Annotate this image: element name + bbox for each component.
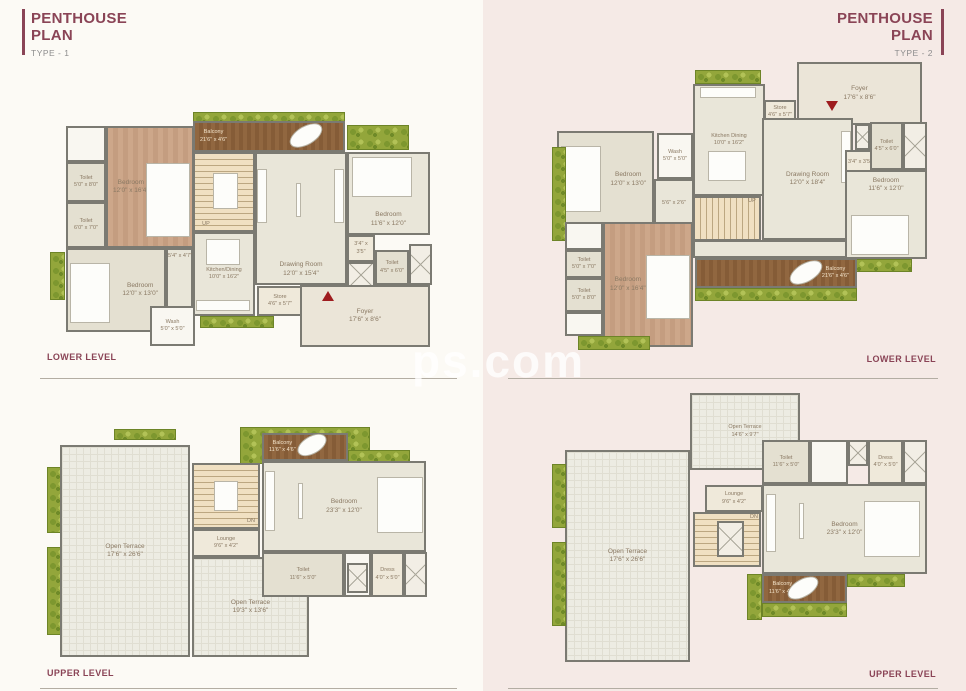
- t1u-tv-unit: [298, 483, 303, 519]
- room-label: Toilet 11'6" x 5'0": [290, 567, 317, 581]
- room-label: Open Terrace 14'6" x 9'7": [728, 424, 761, 438]
- t1l-shaft-b: [409, 244, 432, 285]
- t2u-tv-unit: [799, 503, 804, 539]
- t1l-planter-bottom: [200, 316, 274, 328]
- t2u-open-terrace-main: Open Terrace 17'6" x 26'6": [565, 450, 690, 662]
- t2-bottom-line: [508, 688, 938, 689]
- page-title-type1: PENTHOUSE PLAN: [31, 10, 127, 45]
- room-label: Dress 4'0" x 5'0": [375, 567, 399, 581]
- room-label: Toilet 6'0" x 7'0": [74, 218, 98, 232]
- t2u-planter-left1: [552, 464, 566, 528]
- t2u-toilet: Toilet 11'6" x 5'0": [762, 440, 810, 484]
- t2u-planter-balcony-bottom: [762, 603, 847, 617]
- t2l-up-label: UP: [744, 198, 760, 205]
- t2l-kitchen-counter: [700, 87, 756, 98]
- page-canvas: PENTHOUSE PLAN TYPE - 1 PENTHOUSE PLAN T…: [0, 0, 966, 691]
- room-label: Balcony 21'6" x 4'6": [200, 129, 227, 143]
- t2-lower-level-label: LOWER LEVEL: [867, 354, 936, 364]
- t1u-sofa: [265, 471, 275, 531]
- t1u-bed: [377, 477, 423, 533]
- t1l-toilet-a: Toilet 5'0" x 8'0": [66, 162, 106, 202]
- t2l-foyer: Foyer 17'6" x 8'6": [797, 62, 922, 125]
- t1l-wash: Wash 5'0" x 5'0": [150, 306, 195, 346]
- room-label: Balcony 11'6" x 4'6": [269, 440, 296, 454]
- room-label: 3'4" x 3'5": [848, 159, 872, 166]
- t2l-shaft-a: [855, 124, 870, 150]
- room-label: Kitchen/Dining 10'0" x 16'2": [206, 267, 241, 281]
- t2l-toilet-right: Toilet 4'5" x 6'0": [870, 122, 903, 170]
- room-label: Toilet 4'5" x 6'0": [380, 260, 404, 274]
- t1l-entry-lobby: [66, 126, 106, 162]
- type2-subtitle: TYPE - 2: [837, 48, 933, 58]
- room-label: Dress 4'0" x 5'0": [873, 455, 897, 469]
- t1l-dining-table: [206, 239, 240, 265]
- t1l-sofa-right: [334, 169, 344, 223]
- t1l-foyer: Foyer 17'6" x 8'6": [300, 285, 430, 347]
- t2-upper-level-label: UPPER LEVEL: [869, 669, 936, 679]
- room-label: Bedroom 12'0" x 16'4": [113, 179, 149, 196]
- room-label: Wash 5'0" x 5'0": [663, 149, 687, 163]
- room-label: Foyer 17'6" x 8'6": [843, 85, 875, 102]
- room-label: Bedroom 11'6" x 12'0": [868, 177, 903, 194]
- room-label: Toilet 5'0" x 8'0": [74, 175, 98, 189]
- t1u-open-terrace-main: Open Terrace 17'6" x 26'6": [60, 445, 190, 657]
- t2u-stairs-landing-shaft: [717, 521, 744, 557]
- t2l-passage-dims: 5'6" x 2'6": [655, 200, 693, 207]
- t2l-entry: [565, 312, 603, 336]
- t1l-planter-topright: [347, 125, 409, 150]
- room-label: Wash 5'0" x 5'0": [160, 319, 184, 333]
- t2l-planter-left: [552, 147, 566, 241]
- t2u-lounge: Lounge 9'6" x 4'2": [705, 485, 763, 512]
- room-label: Toilet 5'0" x 8'0": [572, 288, 596, 302]
- room-label: Bedroom 12'0" x 13'0": [610, 171, 646, 188]
- room-label: Kitchen Dining 10'0" x 16'2": [711, 133, 746, 147]
- t2u-sofa: [766, 494, 776, 552]
- t1l-bed-bl: [70, 263, 110, 323]
- t1u-planter-top: [114, 429, 176, 440]
- t1u-shaft: [347, 563, 368, 593]
- t1u-stairs-landing: [214, 481, 238, 511]
- t1l-balcony: Balcony 21'6" x 4'6": [193, 121, 345, 152]
- t2l-bed-left: [561, 146, 601, 212]
- t1u-planter-left1: [47, 467, 61, 533]
- t2l-wash: Wash 5'0" x 5'0": [657, 133, 693, 179]
- t1u-lounge: Lounge 9'6" x 4'2": [192, 529, 260, 557]
- t1l-passage-dims: 5'4" x 4'7": [162, 253, 198, 260]
- t2l-planter-right: [848, 259, 912, 272]
- t2l-balcony: Balcony 21'6" x 4'6": [695, 258, 857, 288]
- t2u-bed: [864, 501, 920, 557]
- t1-bottom-line: [40, 688, 457, 689]
- t2u-shaft: [848, 440, 868, 466]
- t1l-up-label: UP: [196, 221, 216, 228]
- entry-arrow-icon: [826, 101, 838, 111]
- header-accent-bar-right: [941, 9, 944, 55]
- entry-arrow-icon: [322, 291, 334, 301]
- room-label: Store 4'6" x 5'7": [268, 294, 292, 308]
- room-label: Store 4'6" x 5'7": [768, 105, 792, 119]
- t2l-drawing-room: Drawing Room 12'0" x 18'4": [762, 118, 853, 240]
- t1-lower-level-label: LOWER LEVEL: [47, 352, 116, 362]
- t2l-dining-table: [708, 151, 746, 181]
- t2u-dn-label: DN: [746, 514, 762, 521]
- t2u-planter-left2: [552, 542, 566, 626]
- room-label: Lounge 9'6" x 4'2": [722, 491, 746, 505]
- room-label: Toilet 11'6" x 5'0": [773, 455, 800, 469]
- t2u-dress: Dress 4'0" x 5'0": [868, 440, 903, 484]
- t1u-planter-left2: [47, 547, 61, 635]
- t1u-dress: Dress 4'0" x 5'0": [371, 552, 404, 597]
- t1l-toilet-right: Toilet 4'5" x 6'0": [375, 250, 409, 285]
- t2u-wc-hall: [810, 440, 848, 484]
- t1l-bed-master: [146, 163, 190, 237]
- t2l-planter-below-balcony: [695, 288, 857, 301]
- t2l-hall-strip: [693, 240, 857, 258]
- t1u-dn-label: DN: [243, 518, 259, 525]
- room-label: Drawing Room 12'0" x 18'4": [786, 171, 829, 188]
- t1l-stairs-landing: [213, 173, 238, 209]
- t2u-planter-balcony-right: [847, 574, 905, 587]
- t1l-planter-left: [50, 252, 65, 300]
- header-accent-bar-left: [22, 9, 25, 55]
- t1l-kitchen-counter: [196, 300, 250, 311]
- room-label: Toilet 4'5" x 6'0": [874, 139, 898, 153]
- t1-divider-line: [40, 378, 457, 379]
- room-label: Drawing Room 12'0" x 15'4": [280, 261, 323, 278]
- t2u-shaft2: [903, 440, 927, 484]
- room-label: Toilet 5'0" x 7'0": [572, 257, 596, 271]
- room-label: Foyer 17'6" x 8'6": [349, 308, 381, 325]
- t1l-bed-right: [352, 157, 412, 197]
- t2l-bed-master: [646, 255, 690, 319]
- t2l-planter-top: [695, 70, 761, 84]
- room-label: Balcony 21'6" x 4'6": [822, 266, 849, 280]
- t2u-planter-balcony-left: [747, 574, 762, 620]
- t1-upper-level-label: UPPER LEVEL: [47, 668, 114, 678]
- room-label: Open Terrace 17'6" x 26'6": [608, 548, 647, 565]
- t2l-toilet-b: Toilet 5'0" x 8'0": [565, 278, 603, 312]
- page-title-type2: PENTHOUSE PLAN: [837, 10, 933, 45]
- t1l-store: Store 4'6" x 5'7": [257, 286, 303, 316]
- room-label: Bedroom 23'3" x 12'0": [326, 498, 362, 515]
- t1u-toilet: Toilet 11'6" x 5'0": [262, 552, 344, 597]
- t2l-toilet-a: Toilet 5'0" x 7'0": [565, 250, 603, 278]
- room-label: Bedroom 11'6" x 12'0": [371, 211, 406, 228]
- t2l-lobby-left: [565, 222, 603, 250]
- t1l-lobby-small: 3'4" x 3'5": [347, 235, 375, 262]
- room-label: Lounge 9'6" x 4'2": [214, 536, 238, 550]
- t2l-shaft-b: [903, 122, 927, 170]
- room-label: Bedroom 23'3" x 12'0": [827, 521, 863, 538]
- t2l-bed-right: [851, 215, 909, 255]
- type1-header: PENTHOUSE PLAN TYPE - 1: [31, 10, 127, 58]
- room-label: Bedroom 12'0" x 13'0": [122, 282, 158, 299]
- type1-subtitle: TYPE - 1: [31, 48, 127, 58]
- t1l-sofa-left: [257, 169, 267, 223]
- watermark-text: ps.com: [412, 334, 585, 388]
- room-label: Open Terrace 19'3" x 13'6": [231, 599, 270, 616]
- t1u-shaft2: [404, 552, 427, 597]
- t1l-tv-unit: [296, 183, 301, 217]
- room-label: 3'4" x 3'5": [349, 241, 373, 255]
- t2l-planter-bottom: [578, 336, 650, 350]
- type2-header: PENTHOUSE PLAN TYPE - 2: [837, 10, 933, 58]
- t1l-toilet-b: Toilet 6'0" x 7'0": [66, 202, 106, 248]
- room-label: Open Terrace 17'6" x 26'6": [105, 543, 144, 560]
- room-label: Bedroom 12'0" x 16'4": [610, 276, 646, 293]
